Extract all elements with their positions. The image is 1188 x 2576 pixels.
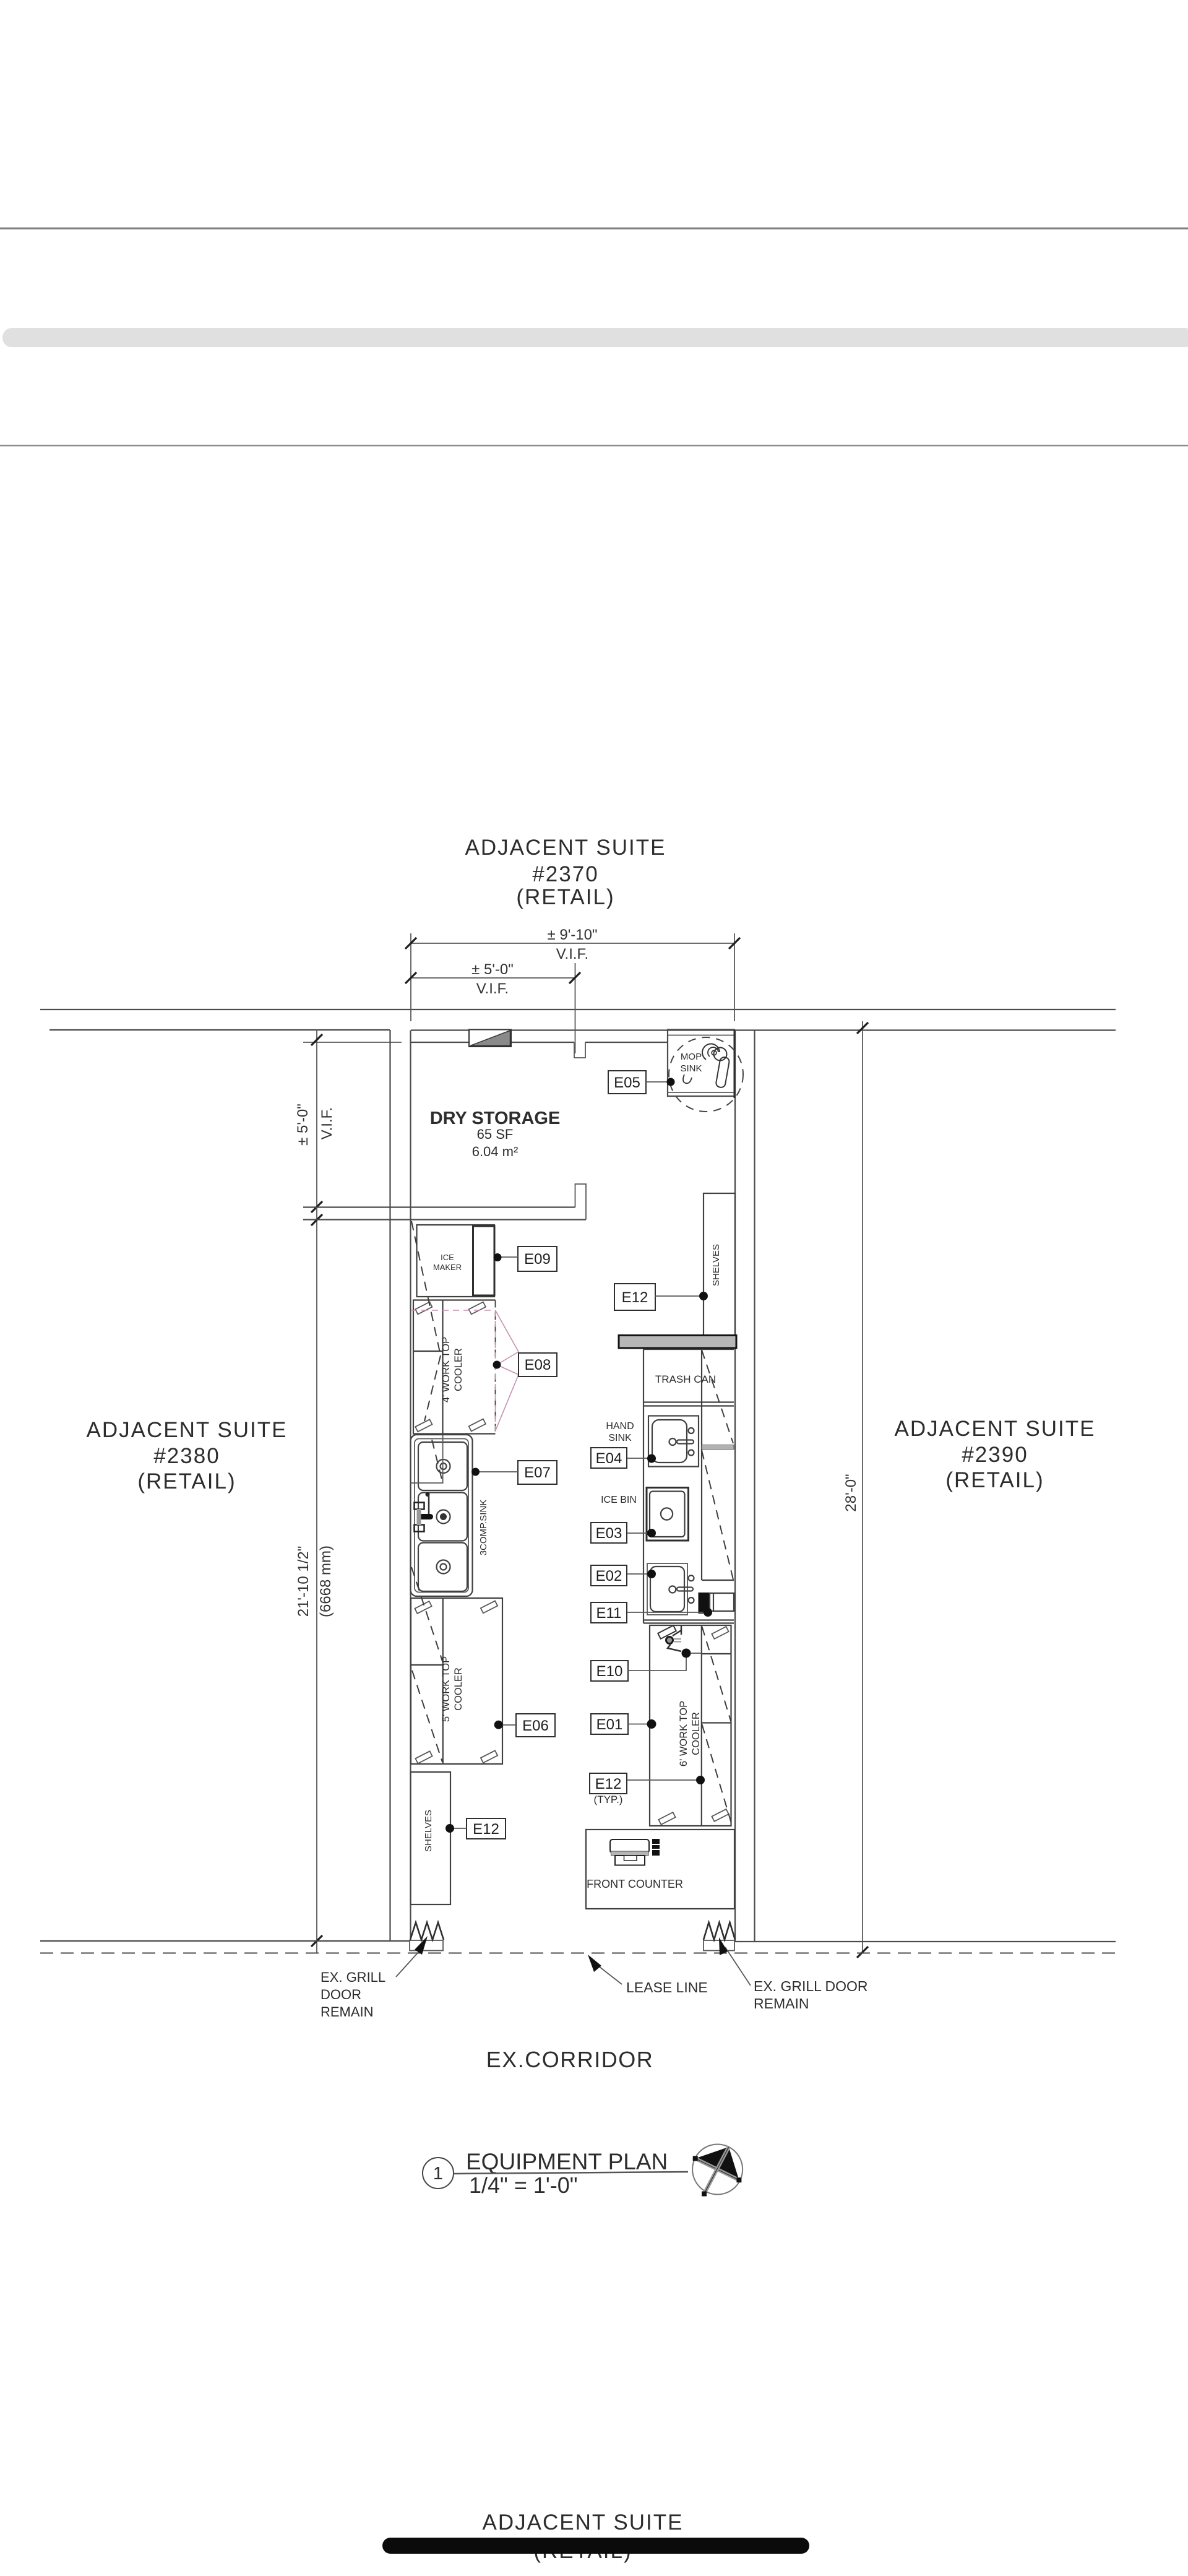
svg-text:COOLER: COOLER bbox=[691, 1712, 702, 1755]
svg-text:TRASH CAN: TRASH CAN bbox=[655, 1373, 716, 1385]
svg-text:#2370: #2370 bbox=[532, 862, 598, 886]
svg-text:E11: E11 bbox=[596, 1605, 622, 1622]
svg-text:(RETAIL): (RETAIL) bbox=[516, 885, 614, 909]
svg-text:E12: E12 bbox=[622, 1289, 648, 1306]
svg-text:DOOR: DOOR bbox=[321, 1987, 361, 2002]
svg-text:E03: E03 bbox=[596, 1525, 622, 1542]
svg-text:E07: E07 bbox=[524, 1464, 551, 1481]
svg-text:REMAIN: REMAIN bbox=[321, 2004, 374, 2020]
svg-text:SINK: SINK bbox=[680, 1063, 702, 1074]
svg-text:E05: E05 bbox=[614, 1074, 640, 1091]
svg-text:6.04 m²: 6.04 m² bbox=[472, 1144, 519, 1159]
svg-text:ICE BIN: ICE BIN bbox=[601, 1495, 637, 1505]
svg-text:LEASE LINE: LEASE LINE bbox=[626, 1979, 708, 1995]
svg-text:21'-10 1/2": 21'-10 1/2" bbox=[295, 1546, 312, 1617]
svg-text:E08: E08 bbox=[525, 1357, 551, 1373]
svg-text:EQUIPMENT PLAN: EQUIPMENT PLAN bbox=[466, 2149, 668, 2174]
svg-text:FRONT COUNTER: FRONT COUNTER bbox=[587, 1878, 683, 1890]
svg-text:6' WORK TOP: 6' WORK TOP bbox=[678, 1701, 689, 1766]
svg-text:3COMP.SINK: 3COMP.SINK bbox=[478, 1500, 489, 1556]
svg-text:E12: E12 bbox=[595, 1776, 622, 1792]
svg-text:ADJACENT SUITE: ADJACENT SUITE bbox=[87, 1418, 288, 1442]
svg-text:SHELVES: SHELVES bbox=[711, 1244, 721, 1286]
svg-text:E01: E01 bbox=[596, 1716, 623, 1733]
svg-text:4' WORK TOP: 4' WORK TOP bbox=[441, 1337, 452, 1403]
svg-text:ADJACENT SUITE: ADJACENT SUITE bbox=[465, 836, 666, 860]
svg-text:EX.CORRIDOR: EX.CORRIDOR bbox=[486, 2047, 654, 2072]
svg-text:E04: E04 bbox=[596, 1450, 622, 1467]
svg-text:V.I.F.: V.I.F. bbox=[556, 946, 588, 962]
svg-text:E09: E09 bbox=[524, 1251, 551, 1268]
svg-text:SHELVES: SHELVES bbox=[423, 1810, 434, 1852]
svg-text:± 5'-0": ± 5'-0" bbox=[471, 961, 514, 978]
svg-text:1: 1 bbox=[433, 2164, 443, 2184]
svg-text:COOLER: COOLER bbox=[453, 1348, 464, 1391]
svg-text:ADJACENT SUITE: ADJACENT SUITE bbox=[895, 1417, 1096, 1441]
svg-text:ADJACENT SUITE: ADJACENT SUITE bbox=[483, 2510, 684, 2535]
svg-text:E06: E06 bbox=[522, 1718, 549, 1734]
svg-text:± 9'-10": ± 9'-10" bbox=[548, 927, 598, 943]
svg-text:(6668 mm): (6668 mm) bbox=[317, 1545, 334, 1617]
svg-text:DRY STORAGE: DRY STORAGE bbox=[430, 1109, 561, 1128]
svg-text:ICE: ICE bbox=[441, 1253, 454, 1262]
svg-text:MOP: MOP bbox=[681, 1052, 702, 1062]
svg-text:#2390: #2390 bbox=[962, 1443, 1028, 1467]
svg-text:5' WORK TOP: 5' WORK TOP bbox=[441, 1656, 452, 1722]
svg-text:± 5'-0": ± 5'-0" bbox=[295, 1104, 311, 1146]
svg-text:1/4" = 1'-0": 1/4" = 1'-0" bbox=[469, 2172, 578, 2198]
svg-text:EX. GRILL DOOR: EX. GRILL DOOR bbox=[754, 1978, 867, 1994]
svg-text:V.I.F.: V.I.F. bbox=[476, 980, 509, 997]
svg-text:65 SF: 65 SF bbox=[477, 1126, 514, 1142]
svg-text:E10: E10 bbox=[596, 1663, 623, 1680]
svg-text:SINK: SINK bbox=[608, 1433, 632, 1443]
svg-text:V.I.F.: V.I.F. bbox=[319, 1107, 335, 1139]
svg-text:E02: E02 bbox=[596, 1568, 622, 1584]
svg-text:EX. GRILL: EX. GRILL bbox=[321, 1969, 385, 1985]
svg-text:(RETAIL): (RETAIL) bbox=[137, 1469, 236, 1493]
svg-text:28'-0": 28'-0" bbox=[843, 1474, 859, 1511]
svg-text:E12: E12 bbox=[473, 1821, 499, 1838]
svg-text:(RETAIL): (RETAIL) bbox=[945, 1468, 1044, 1492]
svg-text:(TYP.): (TYP.) bbox=[594, 1794, 623, 1805]
svg-text:REMAIN: REMAIN bbox=[754, 1995, 809, 2012]
svg-text:COOLER: COOLER bbox=[453, 1667, 464, 1711]
svg-text:HAND: HAND bbox=[606, 1421, 634, 1432]
svg-text:MAKER: MAKER bbox=[433, 1263, 462, 1272]
svg-text:#2380: #2380 bbox=[153, 1444, 220, 1468]
